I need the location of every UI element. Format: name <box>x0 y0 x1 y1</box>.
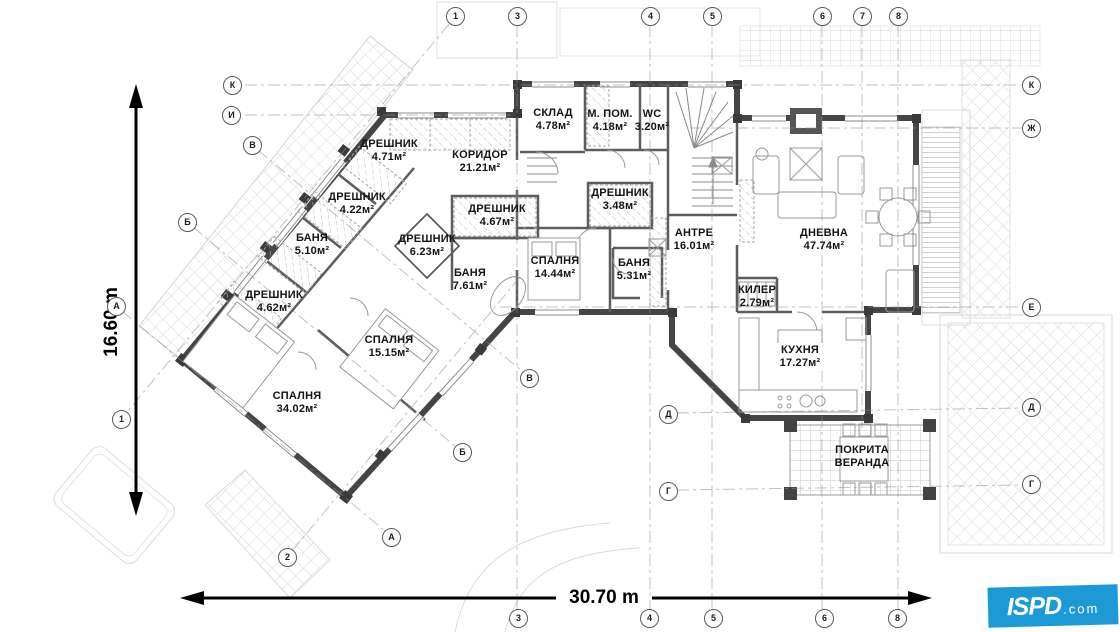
room-name: СПАЛНЯ <box>531 255 580 268</box>
room-area: 34.02м² <box>273 403 322 416</box>
room-name: ДРЕШНИК <box>591 187 649 200</box>
grid-bubble-3-bottom: 3 <box>509 609 528 628</box>
room-area: 21.21м² <box>452 162 508 175</box>
room-name: КУХНЯ <box>780 344 821 357</box>
room-label-koridor: КОРИДОР 21.21м² <box>452 149 508 175</box>
room-name: ДРЕШНИК <box>468 203 526 216</box>
grid-bubble-7-top: 7 <box>853 7 872 26</box>
room-area: 15.15м² <box>365 347 414 360</box>
grid-bubble-4-bottom: 4 <box>640 609 659 628</box>
room-label-wc: WC 3.20м² <box>635 108 669 134</box>
room-name: СПАЛНЯ <box>365 334 414 347</box>
grid-bubble-d-right: Д <box>1022 398 1041 417</box>
grid-bubble-b-diag: Б <box>453 443 472 462</box>
grid-bubble-g-right: Г <box>1022 475 1041 494</box>
grid-bubble-6-bottom: 6 <box>815 609 834 628</box>
room-label-dreshnik-348: ДРЕШНИК 3.48м² <box>591 187 649 213</box>
room-area: 47.74м² <box>800 240 848 253</box>
room-name: ДРЕШНИК <box>245 289 303 302</box>
room-label-banya-531: БАНЯ 5.31м² <box>617 257 651 283</box>
room-label-spalnya-1444: СПАЛНЯ 14.44м² <box>531 255 580 281</box>
grid-bubble-d-inner: Д <box>659 405 678 424</box>
grid-bubble-i-left: И <box>222 106 241 125</box>
room-name: ДРЕШНИК <box>328 191 386 204</box>
room-name: ПОКРИТА ВЕРАНДА <box>824 444 900 470</box>
room-name: ДРЕШНИК <box>398 233 456 246</box>
grid-bubble-8-bottom: 8 <box>888 609 907 628</box>
room-name: БАНЯ <box>453 267 487 280</box>
room-label-kiler: КИЛЕР 2.79м² <box>738 284 776 310</box>
grid-bubble-4-top: 4 <box>641 7 660 26</box>
dimension-width-label: 30.70 m <box>562 587 646 609</box>
room-area: 4.62м² <box>245 302 303 315</box>
room-label-banya-510: БАНЯ 5.10м² <box>295 232 329 258</box>
room-name: СКЛАД <box>533 107 573 120</box>
room-name: КОРИДОР <box>452 149 508 162</box>
dimension-height-label: 16.60 m <box>101 281 123 363</box>
room-label-antre: АНТРЕ 16.01м² <box>674 227 715 253</box>
grid-bubble-g-inner: Г <box>659 482 678 501</box>
grid-bubble-a-diag: А <box>382 528 401 547</box>
room-name: СПАЛНЯ <box>273 390 322 403</box>
room-label-m-pom: М. ПОМ. 4.18м² <box>587 108 632 134</box>
room-area: 7.61м² <box>453 280 487 293</box>
grid-bubble-1-left: 1 <box>112 410 131 429</box>
room-label-spalnya-3402: СПАЛНЯ 34.02м² <box>273 390 322 416</box>
logo-name: ISPD <box>1006 591 1061 621</box>
room-area: 4.71м² <box>360 151 418 164</box>
grid-bubble-a-left: А <box>107 297 126 316</box>
grid-bubble-b-left: Б <box>178 213 197 232</box>
room-area: 5.31м² <box>617 270 651 283</box>
grid-bubble-1-top: 1 <box>446 7 465 26</box>
grid-bubble-5-bottom: 5 <box>704 609 723 628</box>
grid-bubble-v-diag: В <box>520 369 539 388</box>
room-area: 14.44м² <box>531 268 580 281</box>
grid-bubble-2-bottom: 2 <box>278 548 297 567</box>
logo-tld: .com <box>1063 600 1100 616</box>
room-label-spalnya-1515: СПАЛНЯ 15.15м² <box>365 334 414 360</box>
room-name: АНТРЕ <box>674 227 715 240</box>
grid-bubble-8-top: 8 <box>889 7 908 26</box>
room-area: 4.22м² <box>328 204 386 217</box>
room-label-dreshnik-467: ДРЕШНИК 4.67м² <box>468 203 526 229</box>
room-label-dreshnik-623: ДРЕШНИК 6.23м² <box>398 233 456 259</box>
room-area: 17.27м² <box>780 357 821 370</box>
room-area: 2.79м² <box>738 297 776 310</box>
room-label-dreshnik-471: ДРЕШНИК 4.71м² <box>360 138 418 164</box>
room-area: 4.18м² <box>587 121 632 134</box>
grid-bubble-5-top: 5 <box>703 7 722 26</box>
room-area: 4.78м² <box>533 120 573 133</box>
grid-bubble-e-right: Е <box>1022 298 1041 317</box>
room-area: 3.48м² <box>591 200 649 213</box>
room-label-sklad: СКЛАД 4.78м² <box>533 107 573 133</box>
room-name: ДНЕВНА <box>800 227 848 240</box>
grid-bubble-3-top: 3 <box>508 7 527 26</box>
room-label-veranda: ПОКРИТА ВЕРАНДА <box>824 444 900 470</box>
room-area: 4.67м² <box>468 216 526 229</box>
room-label-dreshnik-422: ДРЕШНИК 4.22м² <box>328 191 386 217</box>
room-name: БАНЯ <box>295 232 329 245</box>
room-name: М. ПОМ. <box>587 108 632 121</box>
grid-bubble-k-left: К <box>223 76 242 95</box>
floorplan-drawing <box>0 0 1120 632</box>
room-label-dreshnik-462: ДРЕШНИК 4.62м² <box>245 289 303 315</box>
room-name: КИЛЕР <box>738 284 776 297</box>
grid-bubble-k-right: К <box>1022 76 1041 95</box>
room-label-kuhnya: КУХНЯ 17.27м² <box>777 343 824 371</box>
floorplan-page: СКЛАД 4.78м² М. ПОМ. 4.18м² WC 3.20м² КО… <box>0 0 1120 632</box>
room-label-dnevna: ДНЕВНА 47.74м² <box>800 227 848 253</box>
room-label-banya-761: БАНЯ 7.61м² <box>453 267 487 293</box>
grid-bubble-6-top: 6 <box>813 7 832 26</box>
room-area: 6.23м² <box>398 246 456 259</box>
room-name: БАНЯ <box>617 257 651 270</box>
room-name: ДРЕШНИК <box>360 138 418 151</box>
grid-bubble-v-left: В <box>243 136 262 155</box>
room-area: 16.01м² <box>674 240 715 253</box>
room-area: 3.20м² <box>635 121 669 134</box>
room-name: WC <box>635 108 669 121</box>
logo: ISPD .com <box>987 584 1118 627</box>
room-area: 5.10м² <box>295 245 329 258</box>
grid-bubble-zh-right: Ж <box>1022 119 1041 138</box>
